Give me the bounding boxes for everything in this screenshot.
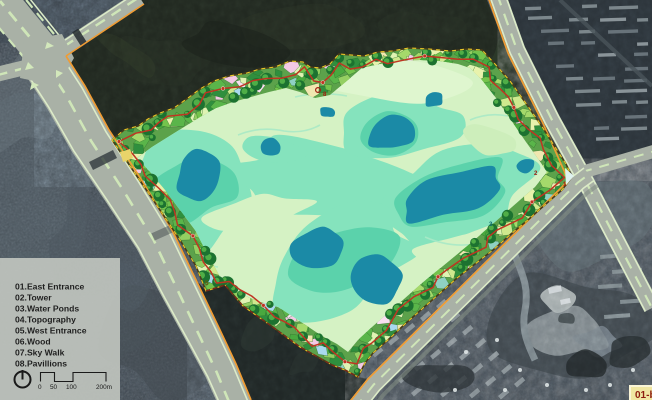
svg-text:08.Pavillions: 08.Pavillions [15, 359, 67, 369]
svg-text:02.Tower: 02.Tower [15, 293, 52, 303]
svg-text:06.Wood: 06.Wood [15, 337, 51, 347]
svg-text:100: 100 [66, 384, 77, 391]
svg-text:07.Sky Walk: 07.Sky Walk [15, 348, 65, 358]
svg-text:05.West Entrance: 05.West Entrance [15, 326, 87, 336]
svg-text:04.Topography: 04.Topography [15, 315, 76, 325]
svg-text:01.East Entrance: 01.East Entrance [15, 282, 84, 292]
svg-text:0: 0 [38, 384, 42, 391]
svg-text:200m: 200m [96, 384, 112, 391]
svg-text:03.Water Ponds: 03.Water Ponds [15, 304, 79, 314]
svg-text:01-b: 01-b [635, 390, 652, 400]
svg-text:50: 50 [50, 384, 58, 391]
